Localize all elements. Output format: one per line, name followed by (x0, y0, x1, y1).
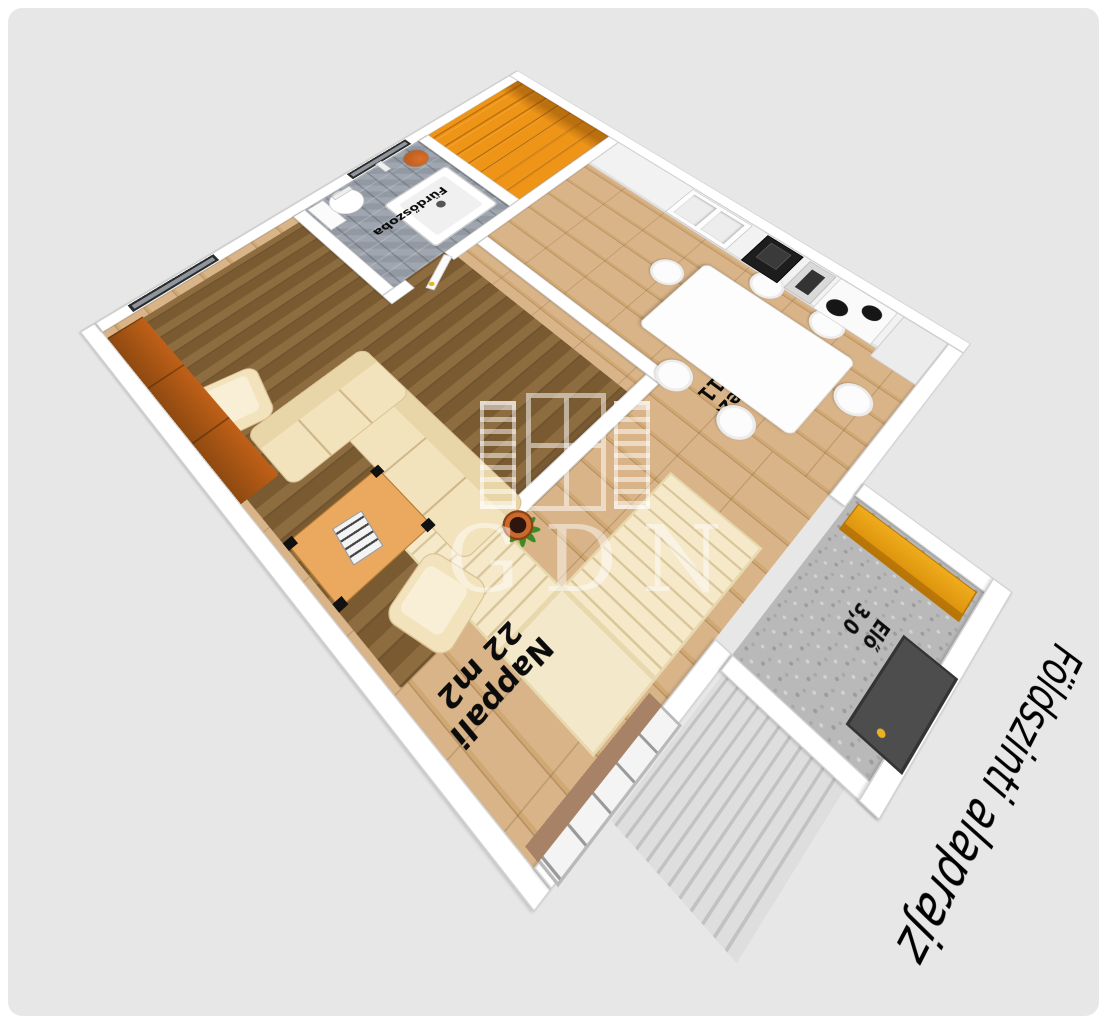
floorplan-image: Nappali 22 m2 Étkező-konyha 11,5 m2 Fürd… (0, 0, 1107, 1024)
front-door-handle (875, 726, 887, 740)
burner-icon (822, 296, 852, 320)
burner-icon (858, 302, 886, 324)
oven-window (795, 269, 826, 295)
plan-3d-scene: Nappali 22 m2 Étkező-konyha 11,5 m2 Fürd… (80, 71, 971, 913)
magazine (332, 510, 384, 566)
microwave-door (756, 243, 792, 270)
bathroom-door-handle (428, 281, 435, 287)
plan-canvas: Nappali 22 m2 Étkező-konyha 11,5 m2 Fürd… (8, 8, 1099, 1016)
